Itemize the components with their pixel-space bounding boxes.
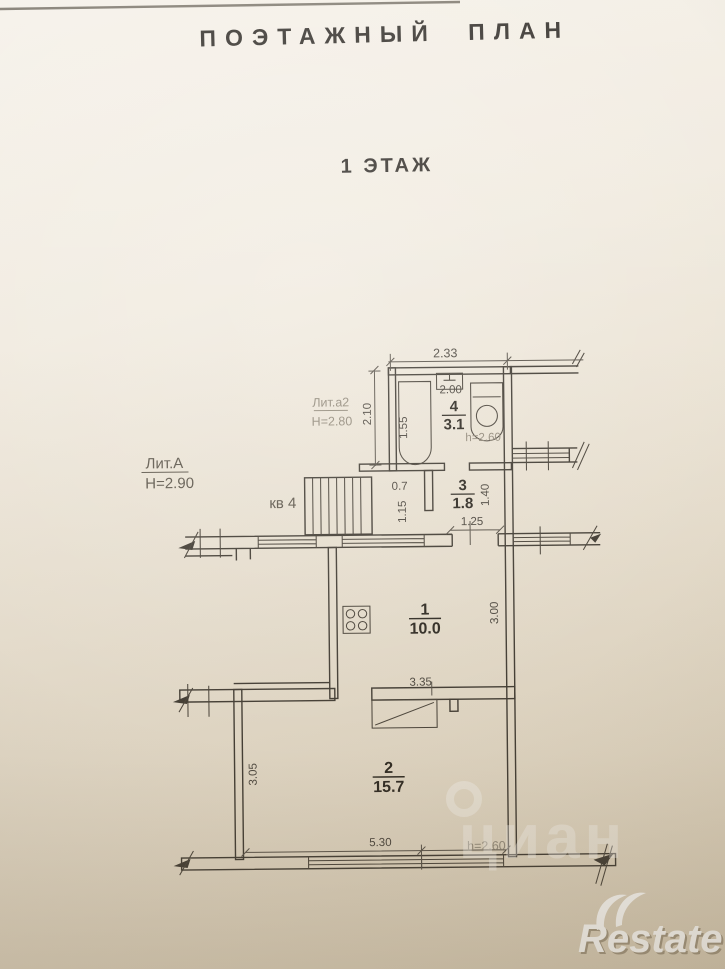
watermark-restate: Restate Restate xyxy=(578,893,725,963)
room-1-area: 10.0 xyxy=(409,620,440,637)
liter-a-height: Н=2.90 xyxy=(145,475,194,493)
page-title: ПОЭТАЖНЫЙ ПЛАН xyxy=(199,15,570,51)
dim-bath-ceiling: h=2.60 xyxy=(465,432,501,444)
dim-hall-height: 1.40 xyxy=(480,484,492,507)
room-4-area: 3.1 xyxy=(443,416,464,433)
room-3-area: 1.8 xyxy=(452,495,473,512)
dim-tub-length: 1.55 xyxy=(398,416,410,439)
dim-left-height: 2.10 xyxy=(362,403,374,426)
room-3-label: 3 1.8 xyxy=(451,477,475,512)
dim-room2-width: 5.30 xyxy=(369,837,392,849)
room-1-label: 1 10.0 xyxy=(409,601,441,637)
floor-plan-scan: ПОЭТАЖНЫЙ ПЛАН 1 ЭТАЖ xyxy=(0,0,725,969)
room-2-area: 15.7 xyxy=(373,779,404,796)
room-4-number: 4 xyxy=(450,398,459,415)
dim-top-width: 2.33 xyxy=(433,346,458,360)
room-2-number: 2 xyxy=(384,760,393,777)
apartment-label: кв 4 xyxy=(269,495,296,512)
dim-kitchen-width: 3.35 xyxy=(409,676,432,688)
liter-a-text: Лит.А xyxy=(146,455,184,472)
liter-a2-label: Лит.а2 Н=2.80 xyxy=(311,395,352,428)
room-4-label: 4 3.1 xyxy=(442,398,466,433)
dim-hall-width: 1.25 xyxy=(461,516,484,528)
dim-corridor-depth: 1.15 xyxy=(397,501,409,524)
room-3-number: 3 xyxy=(458,477,467,494)
dim-kitchen-height: 3.00 xyxy=(489,602,501,625)
paper-edge xyxy=(0,2,460,9)
dimension-lines xyxy=(236,352,588,872)
liter-a2-height: Н=2.80 xyxy=(312,414,353,428)
closet xyxy=(372,699,437,728)
floor-label: 1 ЭТАЖ xyxy=(341,154,434,178)
dim-room2-height: 3.05 xyxy=(248,763,260,786)
dim-bath-width: 2.00 xyxy=(439,384,462,396)
floor-plan-drawing: ПОЭТАЖНЫЙ ПЛАН 1 ЭТАЖ xyxy=(0,0,725,969)
stairs xyxy=(305,477,373,535)
room-2-label: 2 15.7 xyxy=(373,760,405,796)
dim-corridor-width: 0.7 xyxy=(392,481,408,493)
liter-a-label: Лит.А Н=2.90 xyxy=(141,455,194,493)
stove-icon xyxy=(343,606,370,633)
room-1-number: 1 xyxy=(420,601,429,618)
cian-watermark-text: циан xyxy=(459,803,627,872)
watermark-cian: циан xyxy=(450,785,627,872)
liter-a2-text: Лит.а2 xyxy=(312,395,349,409)
